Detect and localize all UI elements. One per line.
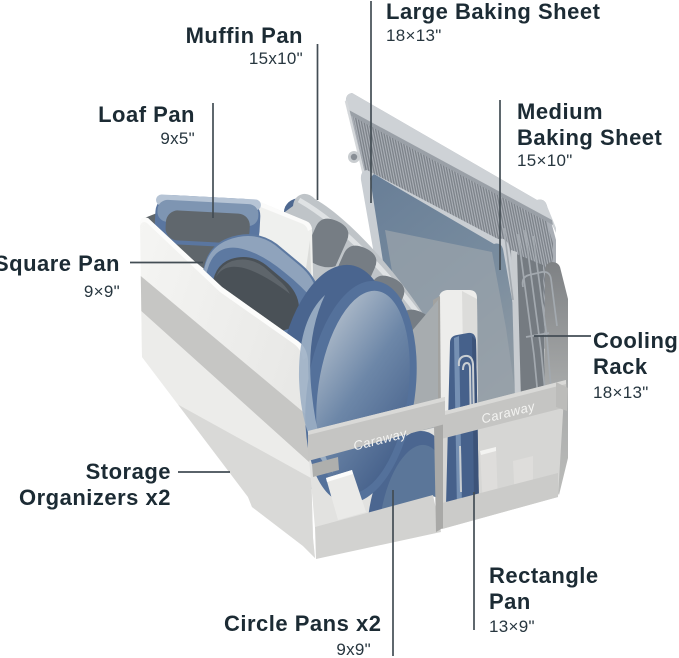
svg-text:15x10": 15x10" [249, 49, 303, 68]
svg-text:9x9": 9x9" [336, 640, 371, 658]
svg-text:Storage: Storage [86, 459, 171, 484]
svg-text:Muffin Pan: Muffin Pan [186, 23, 303, 48]
svg-text:Pan: Pan [489, 589, 531, 614]
svg-text:Rack: Rack [593, 354, 648, 379]
svg-text:9x5": 9x5" [160, 129, 195, 148]
svg-text:Circle Pans x2: Circle Pans x2 [224, 611, 381, 636]
svg-text:18×13": 18×13" [386, 26, 442, 45]
svg-text:Cooling: Cooling [593, 328, 678, 353]
svg-text:9×9": 9×9" [84, 282, 120, 301]
svg-text:13×9": 13×9" [489, 617, 535, 636]
svg-text:Large Baking Sheet: Large Baking Sheet [386, 0, 601, 24]
svg-text:Loaf Pan: Loaf Pan [98, 102, 195, 127]
svg-text:Square Pan: Square Pan [0, 251, 120, 276]
svg-text:Baking Sheet: Baking Sheet [517, 125, 663, 150]
svg-text:Organizers x2: Organizers x2 [19, 485, 171, 510]
svg-text:15×10": 15×10" [517, 151, 573, 170]
svg-text:Medium: Medium [517, 99, 603, 124]
svg-text:18×13": 18×13" [593, 383, 649, 402]
svg-text:Rectangle: Rectangle [489, 563, 599, 588]
